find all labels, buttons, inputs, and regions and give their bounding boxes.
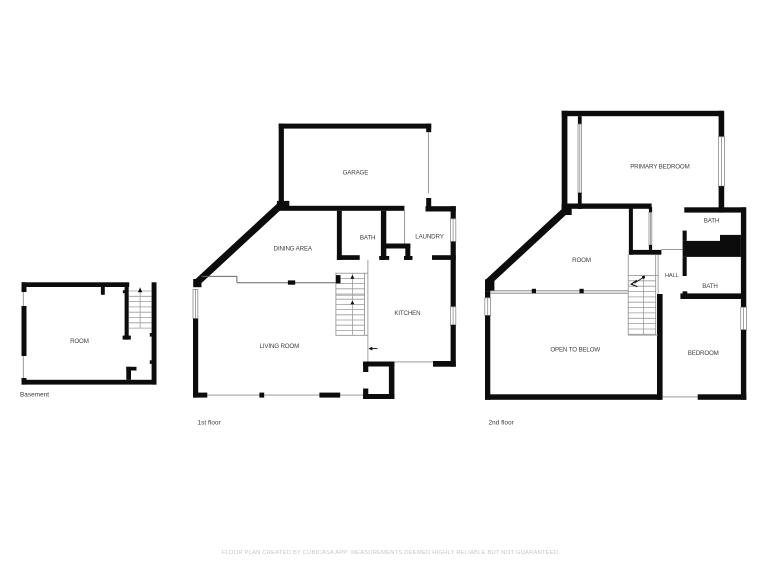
- svg-text:LAUNDRY: LAUNDRY: [415, 234, 443, 241]
- svg-text:1st floor: 1st floor: [198, 419, 221, 426]
- svg-text:BEDROOM: BEDROOM: [688, 350, 719, 357]
- svg-text:Basement: Basement: [20, 392, 49, 399]
- svg-text:HALL: HALL: [665, 273, 679, 279]
- svg-text:BATH: BATH: [704, 217, 719, 224]
- svg-text:GARAGE: GARAGE: [343, 169, 369, 176]
- svg-text:OPEN TO BELOW: OPEN TO BELOW: [550, 347, 600, 354]
- svg-text:ROOM: ROOM: [70, 338, 89, 345]
- svg-text:BATH: BATH: [702, 283, 717, 290]
- svg-text:PRIMARY BEDROOM: PRIMARY BEDROOM: [630, 163, 689, 170]
- svg-text:LIVING ROOM: LIVING ROOM: [259, 343, 299, 350]
- svg-text:ROOM: ROOM: [572, 257, 591, 264]
- svg-text:2nd floor: 2nd floor: [489, 419, 514, 426]
- svg-text:DINING AREA: DINING AREA: [274, 246, 313, 253]
- svg-text:BATH: BATH: [360, 235, 375, 242]
- svg-text:KITCHEN: KITCHEN: [394, 310, 420, 317]
- svg-text:FLOOR PLAN CREATED BY CUBICASA: FLOOR PLAN CREATED BY CUBICASA APP: MEAS…: [222, 550, 561, 556]
